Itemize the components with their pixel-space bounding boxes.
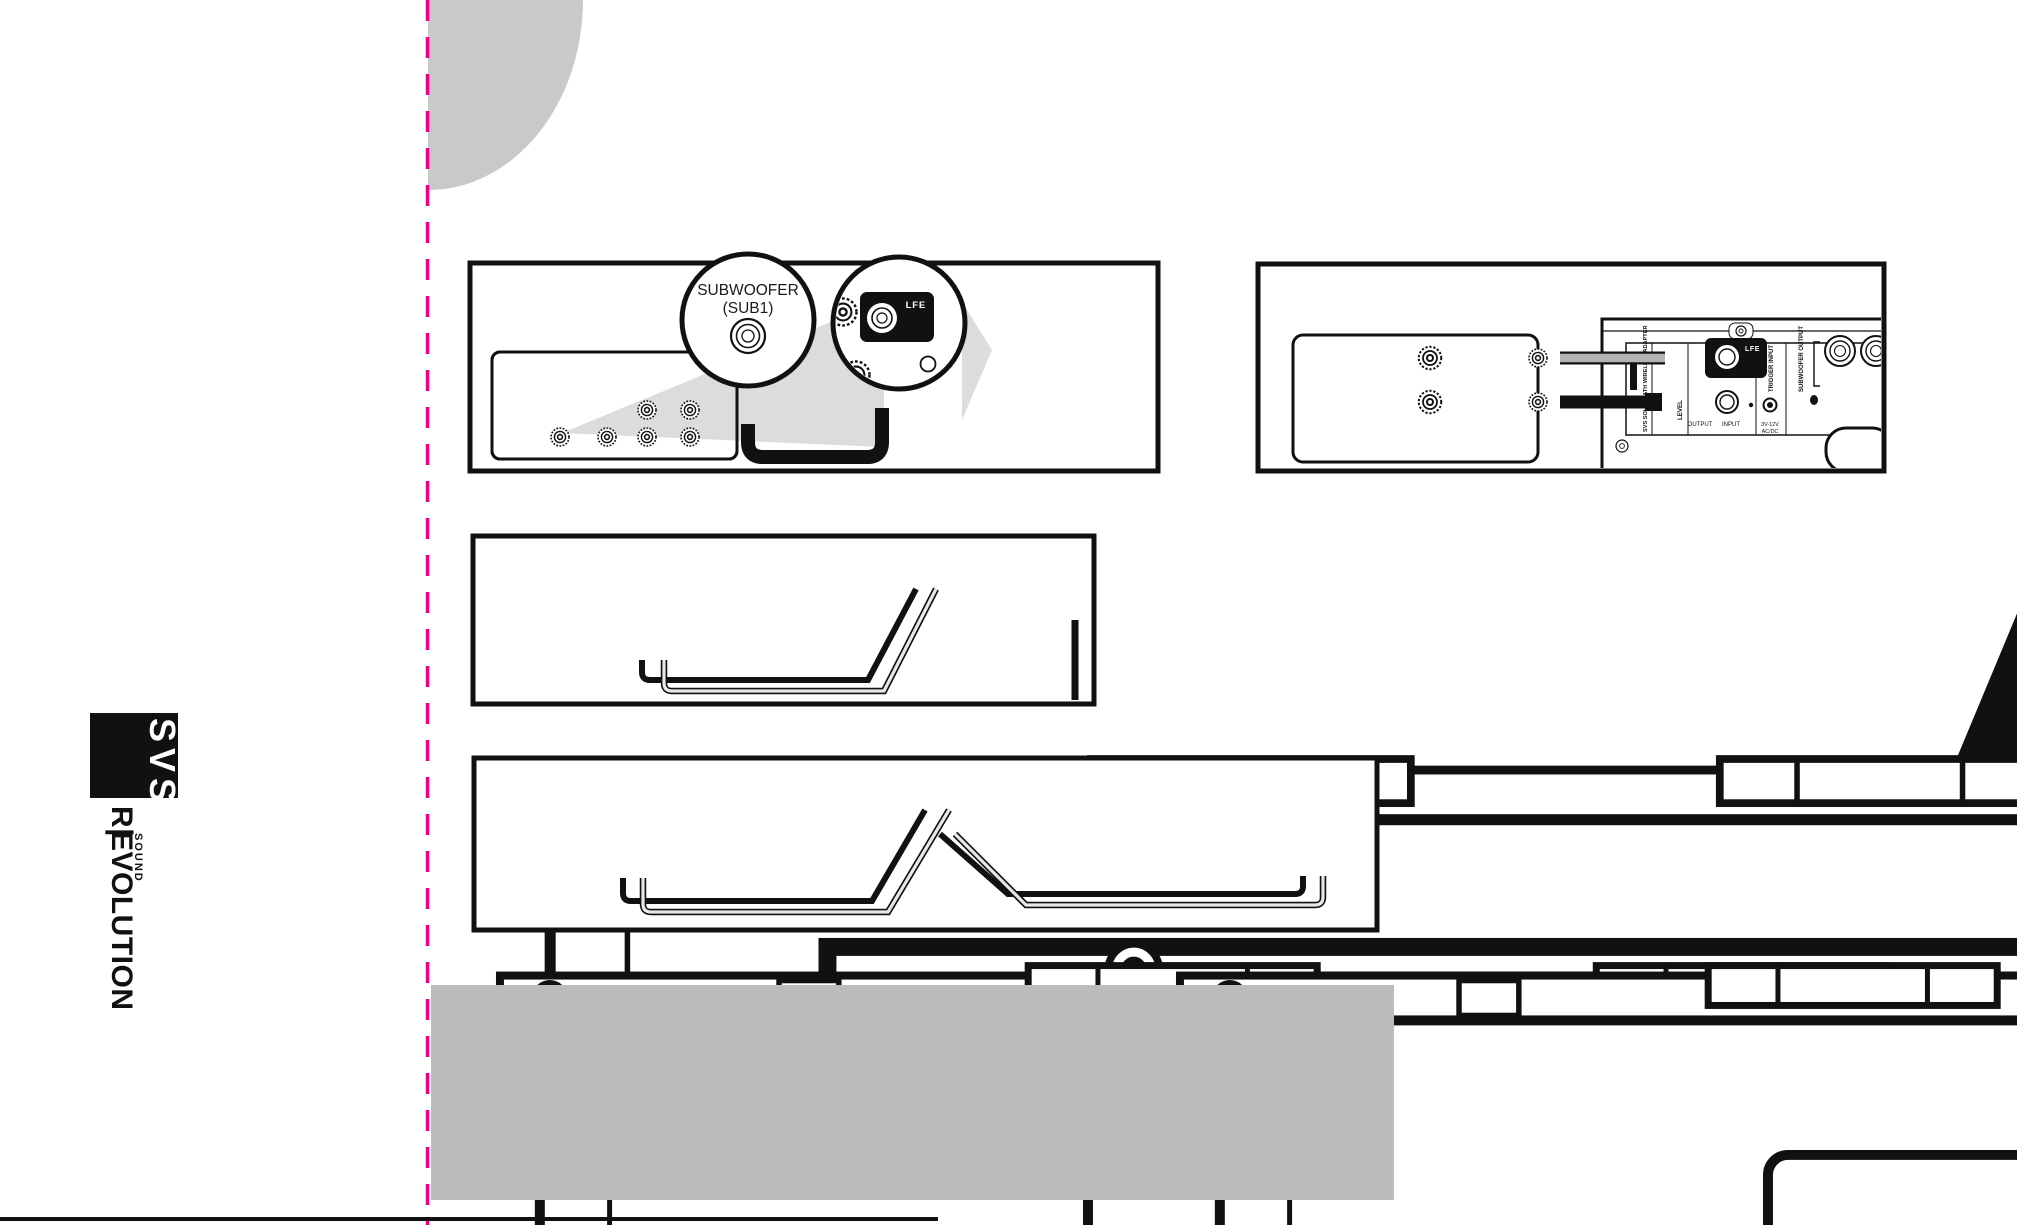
lfe-badge-label: LFE: [906, 300, 926, 311]
lfe-badge: LFE: [860, 292, 934, 342]
manual-page: SVS: [0, 0, 2017, 1225]
corner-accent: [428, 0, 583, 190]
rca-jack-large: [731, 319, 765, 353]
logo-tagline: R| EVOLUTION SOUND: [105, 806, 144, 1011]
logo-brand-text: SVS: [142, 718, 183, 808]
screw-icon: [1616, 440, 1628, 452]
bottom-rule: [0, 1217, 938, 1221]
trigger-input-label: TRIGGER INPUT: [1769, 345, 1775, 392]
input-label: INPUT: [1722, 422, 1740, 428]
placeholder-block: [431, 985, 1394, 1200]
level-label: LEVEL: [1677, 400, 1684, 420]
subwoofer-output-label: SUBWOOFER OUTPUT: [1799, 326, 1805, 392]
logo: SVS R| EVOLUTION SOUND: [90, 713, 183, 1011]
tagline-sound: SOUND: [132, 833, 144, 883]
lfe-badge: LFE: [1705, 338, 1767, 378]
cable-coupler: [1645, 393, 1662, 411]
callout-title-line1: SUBWOOFER: [697, 282, 799, 299]
voltage-line2: AC/DC: [1762, 429, 1779, 435]
lfe-badge-label: LFE: [1745, 346, 1760, 353]
voltage-line1: 3V-12V: [1761, 422, 1779, 428]
callout-title-line2: (SUB1): [723, 300, 774, 317]
screw-icon: [1729, 323, 1753, 339]
wireless-adapter-label: SVS SOUNDPATH WIRELESS ADAPTER: [1643, 326, 1649, 433]
source-device-panel: [1293, 335, 1538, 462]
page-art: SVS: [0, 0, 2017, 1225]
output-label: OUTPUT: [1688, 422, 1713, 428]
